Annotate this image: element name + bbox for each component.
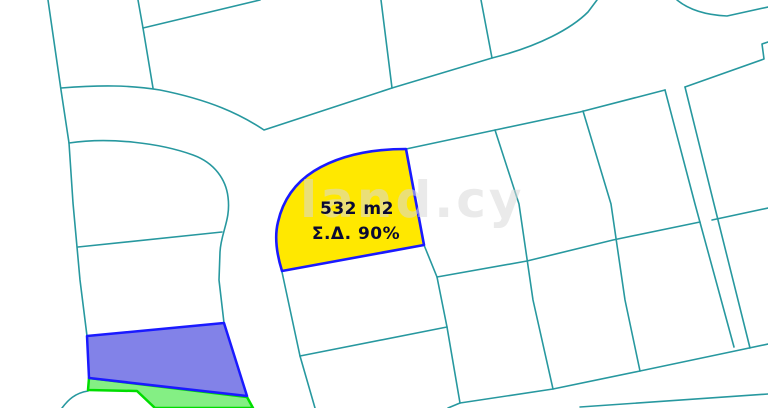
cadastral-map: land.cy 532 m2 Σ.Δ. 90% — [0, 0, 768, 408]
plot-area-label: 532 m2 — [320, 199, 394, 219]
plot-density-label: Σ.Δ. 90% — [312, 224, 400, 244]
